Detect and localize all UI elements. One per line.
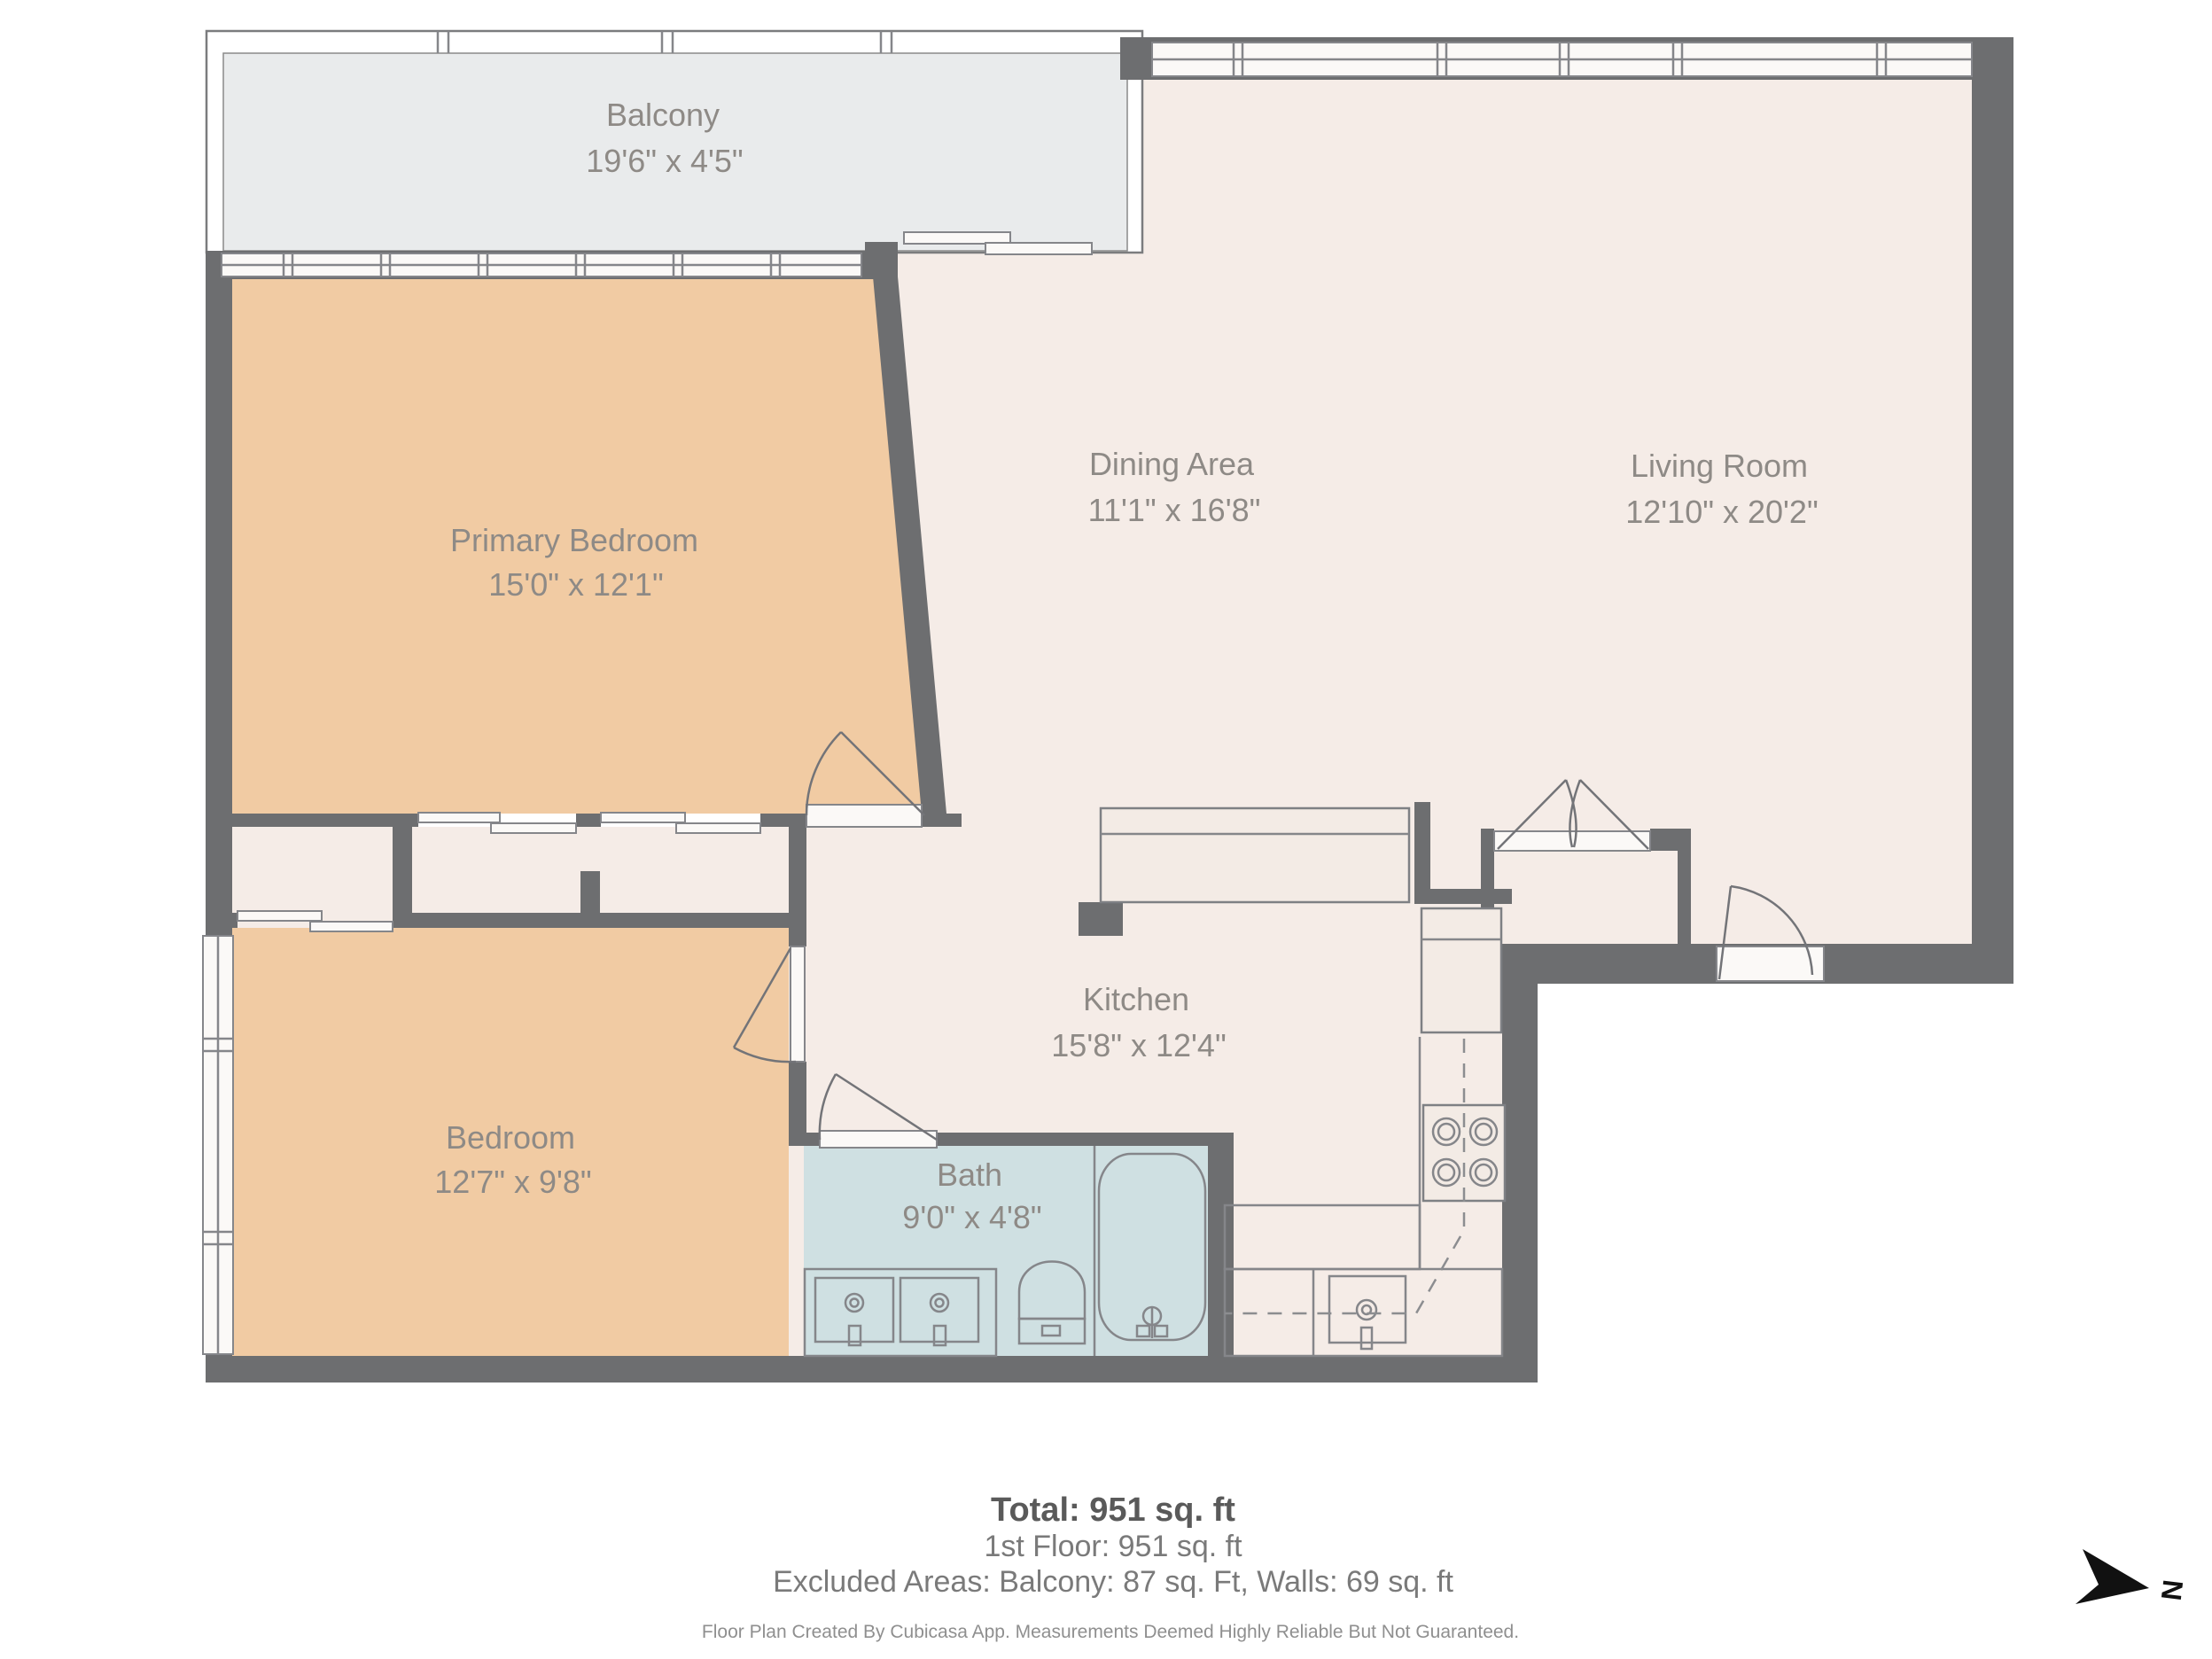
window-top-band bbox=[1152, 43, 1972, 76]
wall-peninsula-stub bbox=[1079, 902, 1123, 936]
wall-right bbox=[1972, 37, 2013, 984]
balcony-slider-panel bbox=[985, 243, 1092, 254]
wall-closet2-cap bbox=[1650, 829, 1678, 851]
balcony-label: Balcony bbox=[606, 97, 720, 133]
primary-door-threshold bbox=[806, 805, 922, 827]
wall-nook-left bbox=[1414, 802, 1430, 889]
window-bedroom-left bbox=[203, 936, 233, 1354]
floor-plan: Balcony 19'6" x 4'5" Primary Bedroom 15'… bbox=[0, 0, 2212, 1659]
dining-area-label: Dining Area bbox=[1089, 446, 1255, 482]
wall-closet-top-a bbox=[206, 814, 418, 827]
wall-closet-bottom-b bbox=[393, 913, 789, 928]
room-balcony bbox=[206, 31, 1142, 253]
kitchen-dimensions: 15'8" x 12'4" bbox=[1051, 1027, 1226, 1063]
living-room-dimensions: 12'10" x 20'2" bbox=[1625, 494, 1818, 530]
closet-slider-panel bbox=[491, 823, 576, 833]
primary-bedroom-label: Primary Bedroom bbox=[450, 522, 698, 558]
closet-slider-panel bbox=[418, 813, 500, 822]
bath-label: Bath bbox=[937, 1157, 1002, 1193]
summary-total: Total: 951 sq. ft bbox=[991, 1492, 1235, 1529]
summary-disclaimer: Floor Plan Created By Cubicasa App. Meas… bbox=[702, 1622, 1519, 1642]
closet-slider-panel bbox=[601, 813, 685, 822]
summary-excluded: Excluded Areas: Balcony: 87 sq. Ft, Wall… bbox=[773, 1565, 1453, 1599]
window-primary-band bbox=[222, 253, 861, 276]
kitchen-label: Kitchen bbox=[1083, 981, 1189, 1017]
summary-first-floor: 1st Floor: 951 sq. ft bbox=[984, 1530, 1242, 1563]
primary-bedroom-dimensions: 15'0" x 12'1" bbox=[488, 566, 663, 603]
bedroom-dimensions: 12'7" x 9'8" bbox=[434, 1164, 591, 1200]
compass-label: N bbox=[2155, 1578, 2190, 1602]
kitchen-peninsula bbox=[1101, 808, 1409, 902]
wall-closet2-right bbox=[1678, 829, 1691, 962]
wall-closet-top-c bbox=[760, 814, 806, 827]
wall-bath-right bbox=[1208, 1133, 1234, 1356]
closet2-door-threshold bbox=[1494, 831, 1650, 851]
floor-plan-page: Balcony 19'6" x 4'5" Primary Bedroom 15'… bbox=[0, 0, 2212, 1659]
balcony-dimensions: 19'6" x 4'5" bbox=[586, 143, 743, 179]
bath-dimensions: 9'0" x 4'8" bbox=[902, 1199, 1041, 1235]
living-room-label: Living Room bbox=[1631, 448, 1808, 484]
wall-dining-stub bbox=[922, 814, 962, 827]
wall-corner-block bbox=[865, 242, 898, 279]
wall-closet2-bottom bbox=[1481, 962, 1691, 984]
wall-nook-top bbox=[1414, 889, 1512, 904]
closet-slider-panel bbox=[310, 922, 393, 931]
closet-slider-panel bbox=[676, 823, 760, 833]
north-arrow-icon bbox=[2076, 1549, 2149, 1604]
wall-bottom bbox=[206, 1356, 1538, 1382]
wall-closet-bottom-a bbox=[206, 913, 238, 928]
bedroom-door-threshold bbox=[791, 946, 805, 1062]
refrigerator bbox=[1421, 908, 1501, 1032]
bath-door-threshold bbox=[820, 1131, 937, 1148]
wall-bath-top-a bbox=[789, 1133, 820, 1146]
bedroom-label: Bedroom bbox=[446, 1119, 575, 1156]
dining-area-dimensions: 11'1" x 16'8" bbox=[1088, 492, 1261, 528]
wall-closet-top-b bbox=[576, 814, 601, 827]
summary: Total: 951 sq. ft 1st Floor: 951 sq. ft … bbox=[702, 1492, 1519, 1642]
compass: N bbox=[2076, 1549, 2189, 1604]
wall-bath-top-b bbox=[937, 1133, 1223, 1146]
wall-bedroom-right-a bbox=[789, 826, 806, 946]
wall-closet-divider bbox=[393, 827, 412, 928]
wall-left-upper bbox=[206, 251, 232, 826]
closet-slider-panel bbox=[238, 911, 322, 921]
wall-kitchen-right bbox=[1502, 970, 1538, 1381]
